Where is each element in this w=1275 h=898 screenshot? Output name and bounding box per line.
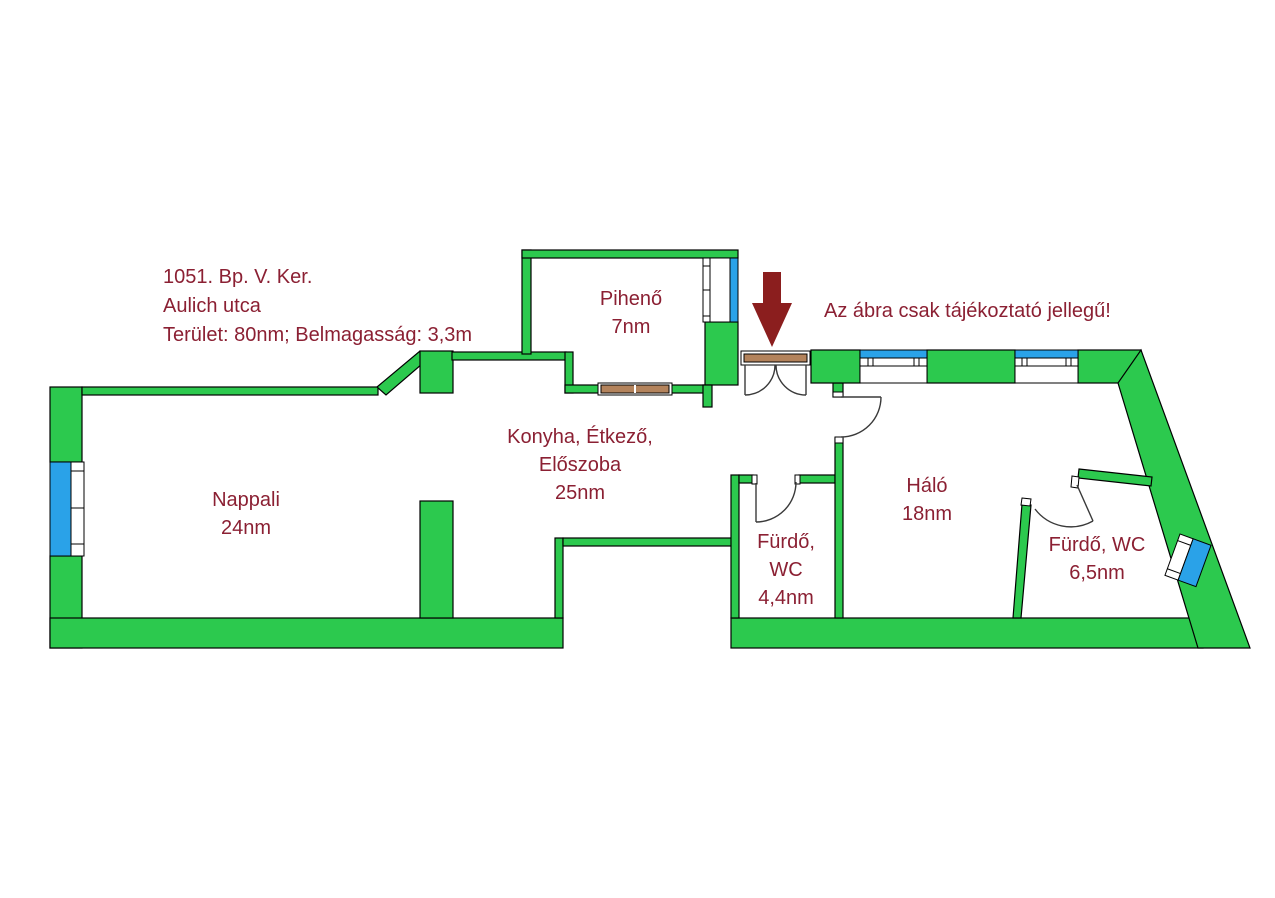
entrance-door-arc-left (745, 365, 775, 395)
door-bath-large (1021, 476, 1093, 527)
window-nappali-left (50, 462, 84, 556)
info-size-line: Terület: 80nm; Belmagasság: 3,3m (163, 321, 472, 350)
room-name: Háló (902, 472, 952, 500)
room-area: 6,5nm (1049, 559, 1146, 587)
door-bath-small (752, 475, 800, 522)
room-name-2: Előszoba (507, 451, 653, 479)
wall-bottom-left (50, 618, 563, 648)
door-jamb (835, 437, 843, 443)
door-arc (756, 482, 796, 522)
entrance-door-arc-right (776, 365, 806, 395)
door-jamb (1021, 498, 1031, 506)
window-halo-1 (860, 350, 927, 383)
wall-diagonal-right (1118, 350, 1250, 648)
room-label-furdo-wc-large: Fürdő, WC 6,5nm (1049, 531, 1146, 587)
info-address-line2: Aulich utca (163, 292, 472, 321)
disclaimer-text: Az ábra csak tájékoztató jellegű! (824, 297, 1111, 326)
wall-pillar-bottom (420, 501, 453, 618)
room-label-konyha: Konyha, Étkező, Előszoba 25nm (507, 423, 653, 507)
wall-piheno-bottom-left (565, 385, 602, 393)
wall-left-upper (50, 387, 82, 462)
wall-bath-large-top (1078, 469, 1152, 486)
window-frame (860, 358, 927, 383)
room-area: 18nm (902, 500, 952, 528)
wall-bath-small-left (731, 475, 739, 618)
room-area: 24nm (212, 514, 280, 542)
window-glass (50, 462, 71, 556)
window-halo-2 (1015, 350, 1078, 383)
entrance-threshold (744, 354, 807, 362)
room-label-halo: Háló 18nm (902, 472, 952, 528)
door-leaf (1077, 485, 1093, 521)
wall-step-horizontal (563, 538, 733, 546)
wall-konyha-top (452, 352, 566, 360)
window-glass (1015, 350, 1078, 358)
door-jamb (752, 475, 757, 484)
door-piheno-threshold (598, 383, 672, 395)
room-area: 4,4nm (757, 584, 815, 612)
window-frame (71, 462, 84, 556)
wall-piheno-left (522, 250, 531, 354)
entrance-arrow-icon (752, 272, 792, 347)
room-label-piheno: Pihenő 7nm (600, 285, 662, 341)
door-arc (1035, 509, 1093, 527)
room-name-2: WC (757, 556, 815, 584)
room-area: 7nm (600, 313, 662, 341)
wall-bath-large-divider (1013, 504, 1031, 618)
wall-konyha-right-stub (703, 385, 712, 407)
room-name: Nappali (212, 486, 280, 514)
door-arc (841, 397, 881, 437)
door-jamb (833, 392, 843, 397)
info-address-line1: 1051. Bp. V. Ker. (163, 263, 472, 292)
wall-bottom-right (731, 618, 1203, 648)
window-glass (730, 258, 738, 322)
wall-top-seg-b (927, 350, 1015, 383)
window-piheno (703, 258, 738, 322)
wall-pillar-top (420, 351, 453, 393)
listing-info: 1051. Bp. V. Ker. Aulich utca Terület: 8… (163, 263, 472, 350)
wall-piheno-bottom-right (668, 385, 705, 393)
wall-bath-small-top-right-stub (799, 475, 835, 483)
room-label-nappali: Nappali 24nm (212, 486, 280, 542)
window-glass (860, 350, 927, 358)
wall-step-vertical (555, 538, 563, 618)
wall-piheno-right-block (705, 322, 738, 385)
wall-top-seg-a (811, 350, 860, 383)
wall-nappali-top (82, 387, 378, 395)
wall-bath-small-top-left-stub (739, 475, 753, 483)
wall-piheno-top (522, 250, 738, 258)
room-label-furdo-wc-small: Fürdő, WC 4,4nm (757, 528, 815, 612)
wall-halo-left (835, 438, 843, 618)
room-name: Pihenő (600, 285, 662, 313)
door-halo (833, 392, 881, 443)
window-frame (1015, 358, 1078, 383)
floor-plan-canvas: 1051. Bp. V. Ker. Aulich utca Terület: 8… (0, 0, 1275, 898)
room-name: Fürdő, (757, 528, 815, 556)
room-name: Konyha, Étkező, (507, 423, 653, 451)
entrance-door (741, 351, 810, 395)
room-name: Fürdő, WC (1049, 531, 1146, 559)
room-area: 25nm (507, 479, 653, 507)
